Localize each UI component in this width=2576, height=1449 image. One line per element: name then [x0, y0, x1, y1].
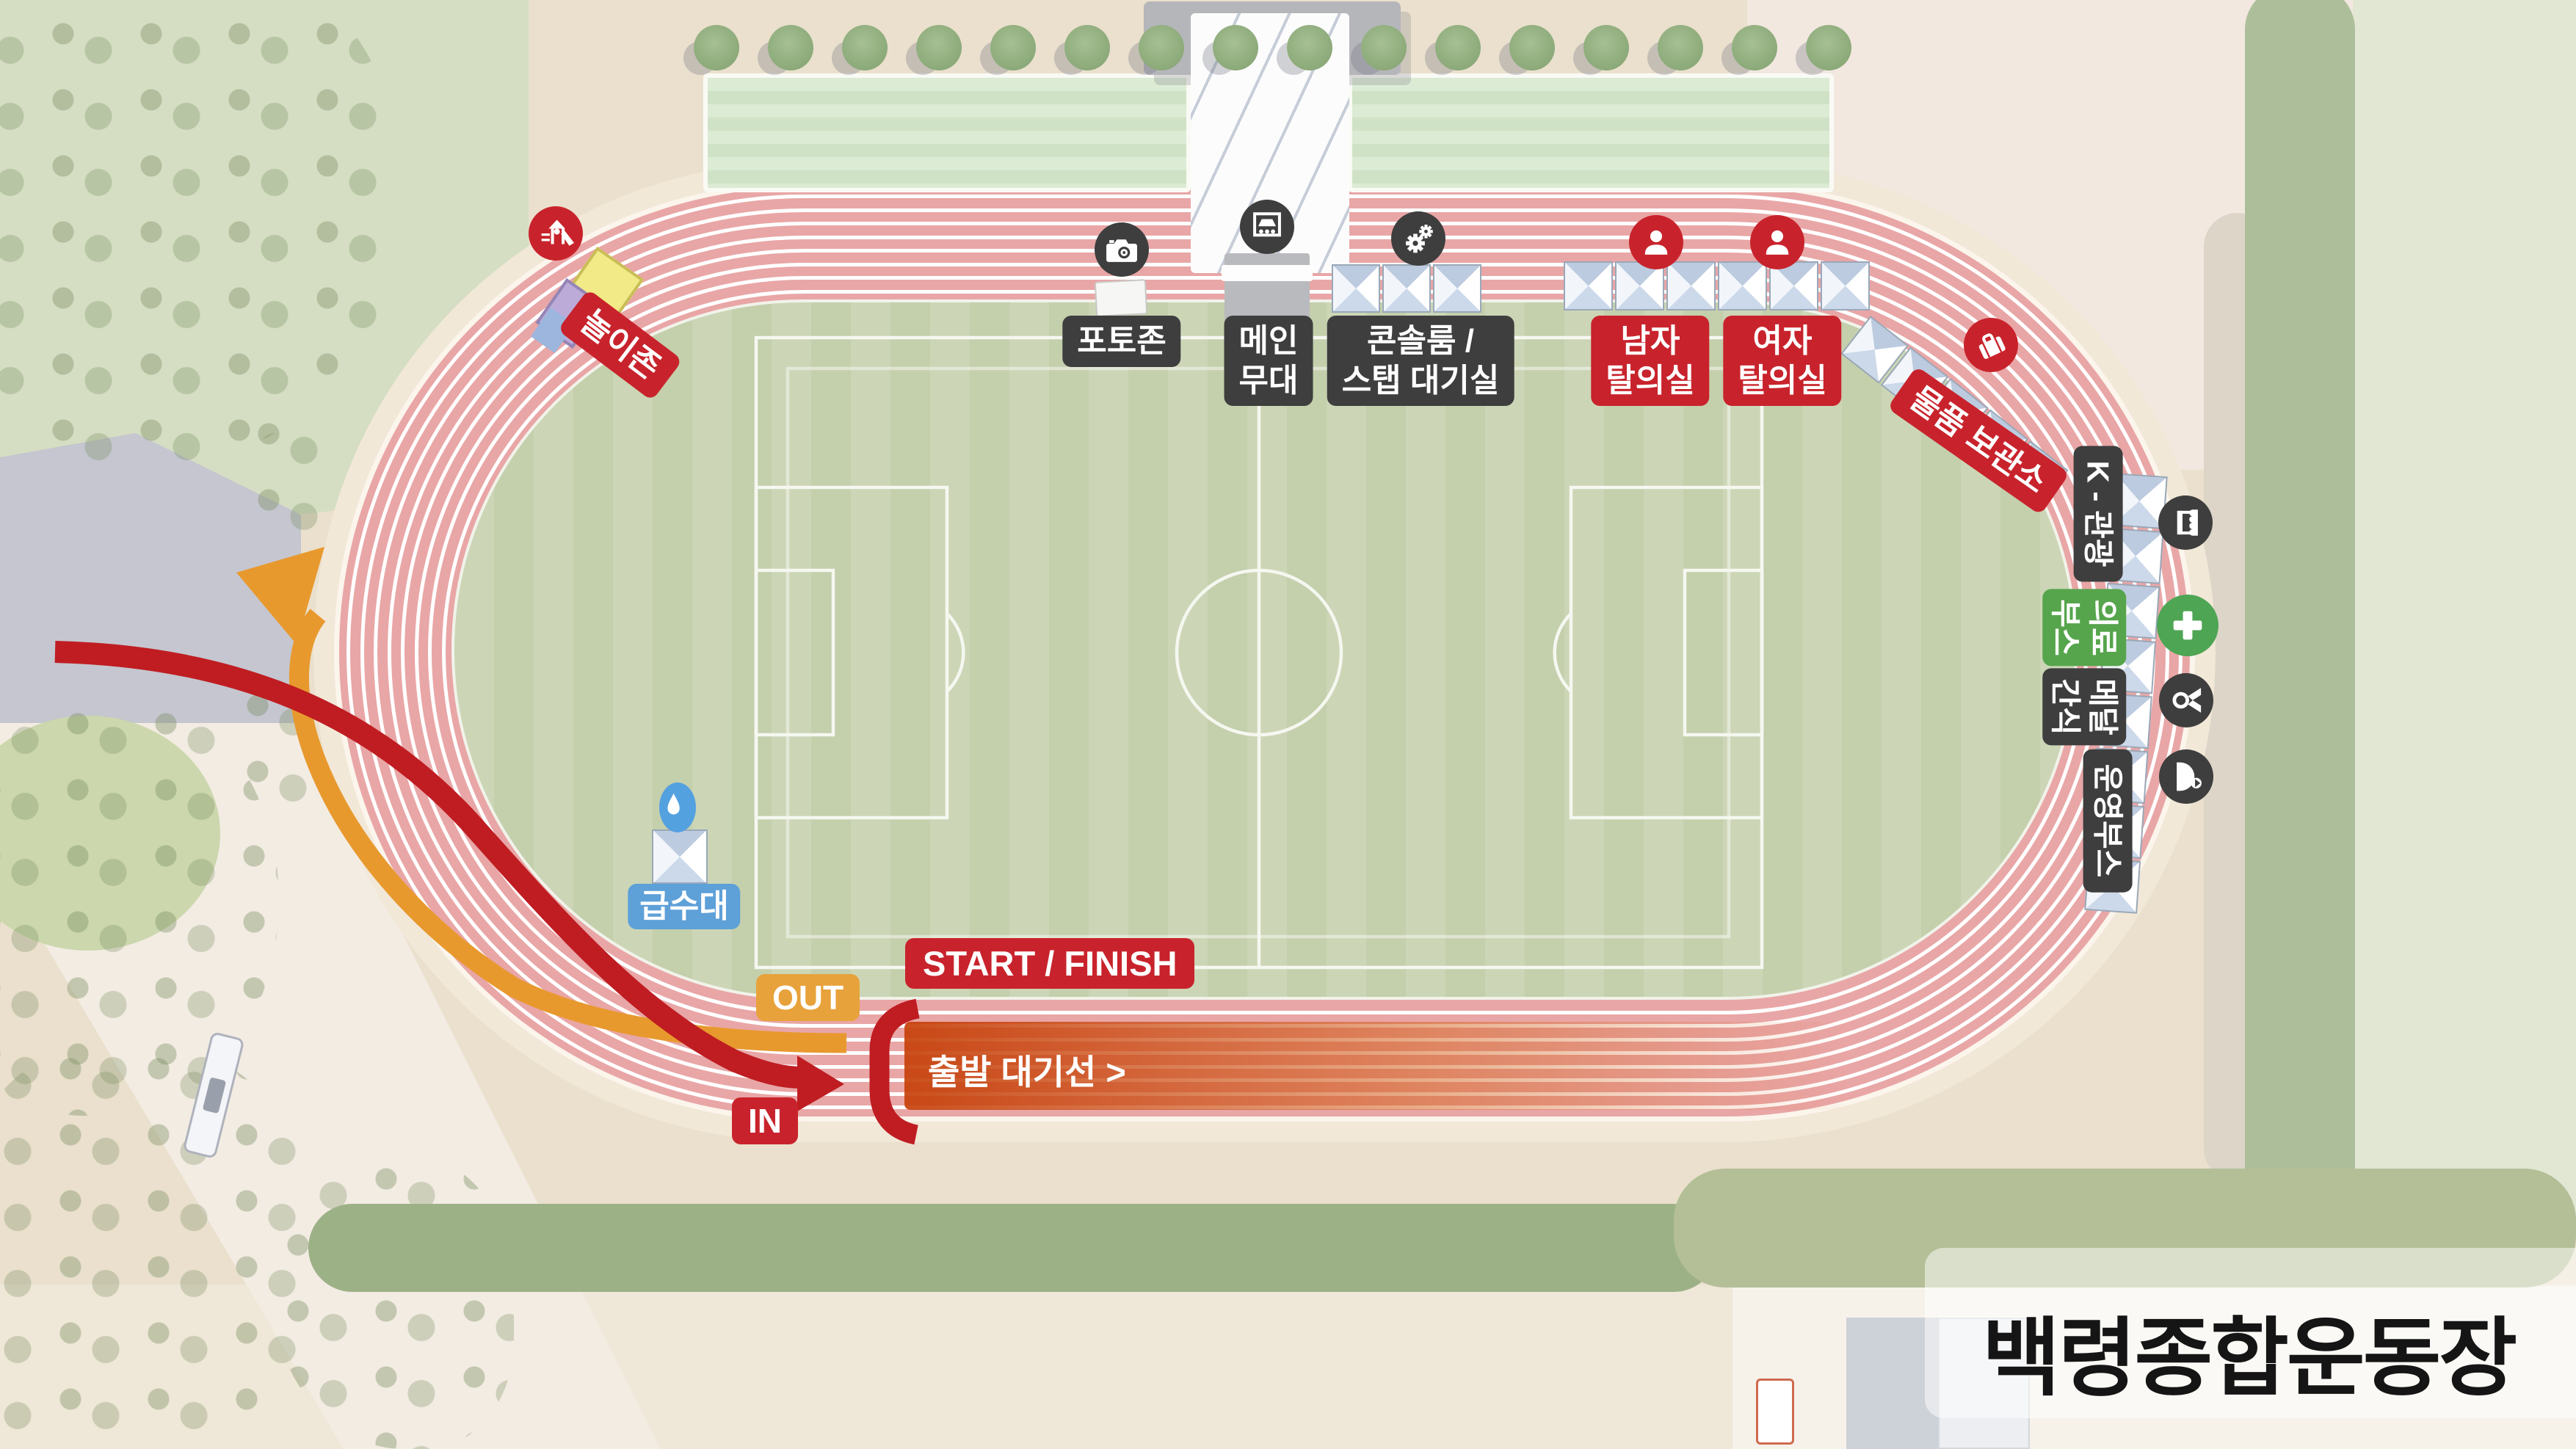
label-men-locker: 남자 탈의실 [1591, 316, 1709, 406]
far-right-green [2353, 0, 2576, 1241]
suitcase-icon [1964, 318, 2018, 372]
label-water-station: 급수대 [628, 884, 740, 929]
conifer-tree [990, 25, 1036, 70]
label-in: IN [732, 1097, 798, 1144]
grandstand-left [703, 73, 1191, 192]
conifer-tree [694, 25, 739, 70]
conifer-tree [1213, 25, 1258, 70]
medical-cross-icon [2157, 595, 2218, 656]
label-main-stage: 메인 무대 [1224, 316, 1313, 406]
label-operation-booth: 운영부스 [2083, 749, 2132, 893]
tent [1821, 261, 1870, 310]
water-station-tent [652, 829, 708, 884]
tent [1666, 261, 1716, 310]
person-icon-men [1629, 215, 1683, 269]
label-k-tour-booth: K - 관광 [2073, 446, 2122, 582]
bus-windows [203, 1077, 226, 1114]
conifer-tree [1361, 25, 1407, 70]
tent [1718, 261, 1767, 310]
stadium-map: 놀이존 포토존 메인 무대 콘솔룸 / 스탭 대기실 남자 탈의실 여자 탈의실… [0, 0, 2576, 1449]
label-waiting-line: 출발 대기선 > [928, 1044, 1126, 1094]
person-icon-women [1750, 215, 1804, 269]
water-drop-icon [659, 782, 696, 832]
photo-table [1095, 279, 1147, 317]
label-console-room: 콘솔룸 / 스탭 대기실 [1327, 316, 1514, 406]
conifer-tree [1806, 25, 1851, 70]
conifer-tree [768, 25, 813, 70]
cart-south [1756, 1379, 1794, 1445]
stadium-title: 백령종합운동장 [1982, 1289, 2515, 1412]
tent [1332, 264, 1380, 313]
label-start-finish: START / FINISH [905, 938, 1194, 989]
medal-icon [2159, 673, 2213, 727]
tent [1564, 261, 1613, 310]
label-women-locker: 여자 탈의실 [1723, 316, 1841, 406]
conifer-tree [1139, 25, 1184, 70]
label-photo-zone: 포토존 [1062, 316, 1180, 367]
label-out: OUT [756, 974, 860, 1021]
conifer-tree [1287, 25, 1332, 70]
conifer-tree [1509, 25, 1555, 70]
stage-icon [1240, 200, 1294, 254]
hedge-right [2245, 0, 2355, 1242]
label-medical-booth: 의료 부스 [2042, 589, 2126, 666]
label-medal-snack: 메달 간식 [2042, 668, 2126, 745]
tree-row-top [694, 25, 1883, 76]
conifer-tree [916, 25, 962, 70]
conifer-tree [1732, 25, 1777, 70]
conifer-tree [842, 25, 888, 70]
conifer-tree [1658, 25, 1703, 70]
tent [1382, 264, 1431, 313]
conifer-tree [1064, 25, 1110, 70]
playground-icon [529, 206, 583, 261]
tent-row-console [1332, 264, 1481, 313]
conifer-tree [1583, 25, 1629, 70]
operation-staff-icon [2159, 749, 2213, 804]
booth-icon [2158, 495, 2213, 550]
bush-row-bottom [308, 1204, 1718, 1292]
grandstand-right [1348, 73, 1834, 192]
tent [1433, 264, 1481, 313]
stage-canopy [1222, 265, 1313, 281]
conifer-tree [1435, 25, 1481, 70]
tent-row-changing [1564, 261, 1870, 310]
camera-icon [1095, 222, 1149, 277]
gears-icon [1391, 211, 1445, 266]
